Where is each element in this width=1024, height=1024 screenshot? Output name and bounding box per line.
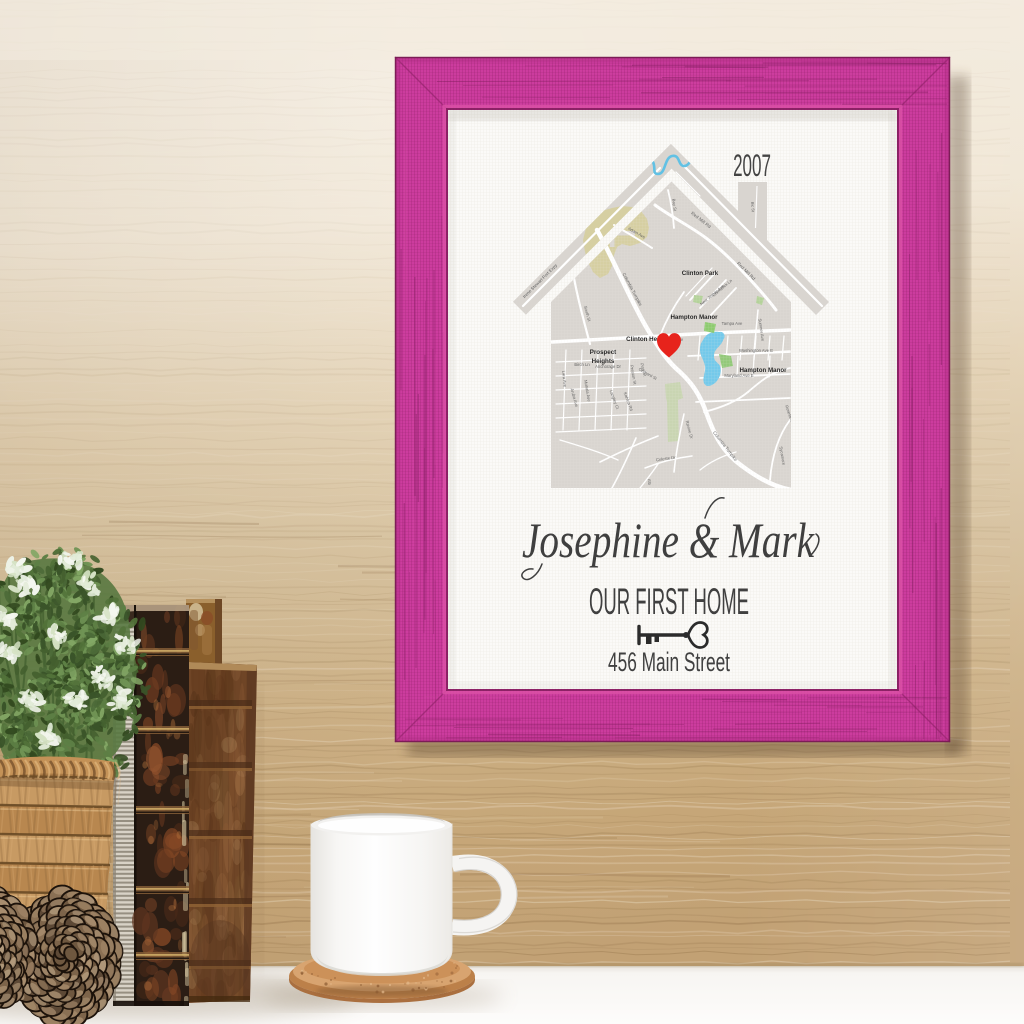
svg-text:Bic St: Bic St bbox=[750, 202, 755, 213]
svg-text:456 Main Street: 456 Main Street bbox=[608, 648, 730, 678]
svg-text:Josephine & Mark: Josephine & Mark bbox=[522, 512, 815, 568]
svg-text:OUR FIRST HOME: OUR FIRST HOME bbox=[589, 581, 749, 622]
svg-text:2007: 2007 bbox=[733, 149, 771, 184]
